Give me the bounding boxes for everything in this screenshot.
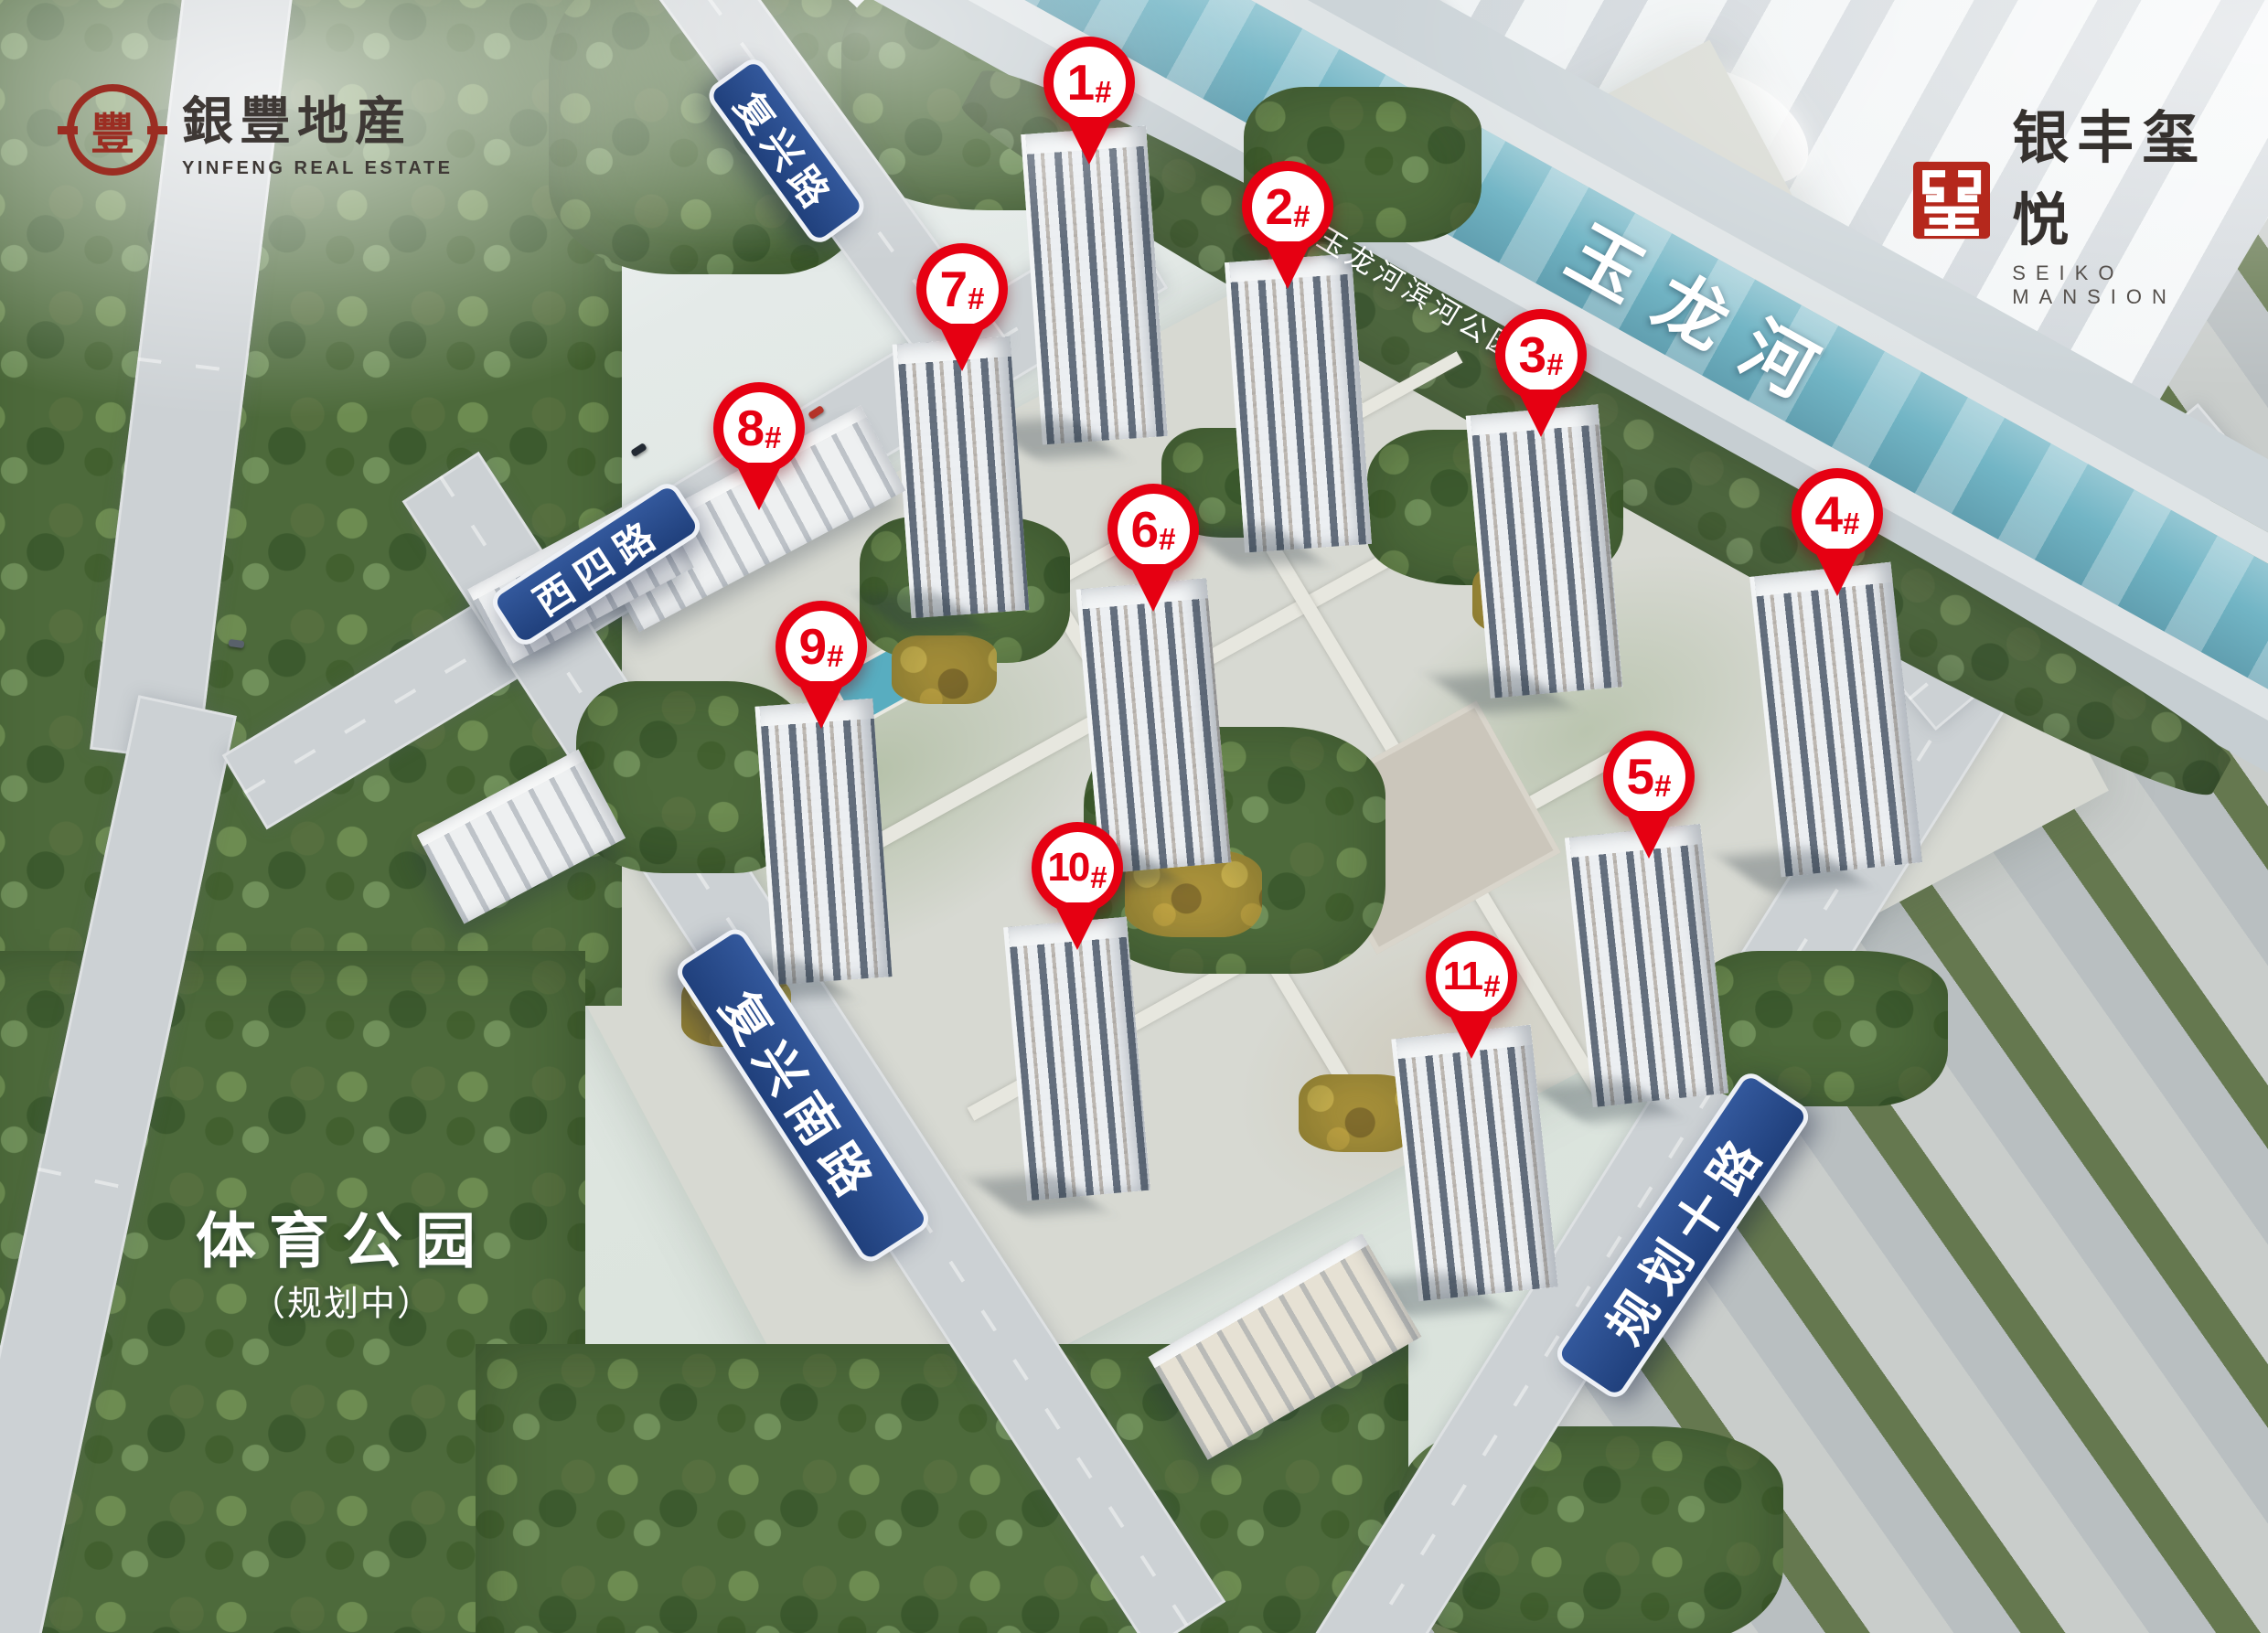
building-tower-1 [1021,126,1167,445]
pin-icon: 2# [1242,161,1333,252]
masterplan-aerial-rendering: 复兴路 西四路 复兴南路 规划十路 玉龙河 玉龙河滨河公园 体育公园 （规划中）… [0,0,2268,1633]
pin-tail [1054,902,1101,950]
autumn-trees [892,635,997,704]
yinfeng-seal-icon: 豐 [67,84,158,176]
pin-tail [797,681,845,729]
building-tower-11 [1391,1025,1557,1301]
building-tower-7 [893,336,1030,618]
building-marker-3: 3# [1495,309,1587,437]
building-marker-11: 11# [1426,931,1517,1059]
yinfeng-logo: 豐 銀豐地産 YINFENG REAL ESTATE [67,80,454,179]
building-marker-10: 10# [1032,822,1123,950]
yinfeng-logo-cn: 銀豐地産 [182,80,454,155]
pin-icon: 11# [1426,931,1517,1022]
building-tower-3 [1466,404,1622,698]
pin-tail [1129,564,1177,612]
building-tower-2 [1225,254,1372,553]
seal-glyph: 豐 [91,98,134,162]
pin-tail [1264,241,1311,289]
mansion-logo-cn: 银丰玺悦 [2012,91,2268,256]
pin-tail [1065,117,1113,165]
pin-tail [938,324,986,371]
pin-icon: 10# [1032,822,1123,913]
pin-tail [1813,549,1861,596]
mansion-logo-en: SEIKO MANSION [2012,261,2268,309]
pin-tail [735,463,783,510]
car [630,443,647,457]
pin-tail [1517,390,1565,437]
sports-park-sublabel: （规划中） [251,1275,433,1326]
building-tower-9 [755,699,893,985]
pin-icon: 5# [1603,731,1695,822]
pin-icon: 7# [916,243,1008,335]
pin-tail [1448,1011,1495,1059]
mansion-seal-icon [1913,156,1990,244]
pin-icon: 1# [1043,37,1135,128]
building-marker-6: 6# [1107,484,1199,612]
pin-tail [1625,811,1673,859]
building-tower-5 [1565,824,1728,1107]
pin-icon: 6# [1107,484,1199,575]
building-marker-9: 9# [776,601,867,729]
sports-park-label: 体育公园 [196,1192,488,1280]
building-marker-1: 1# [1043,37,1135,165]
building-marker-5: 5# [1603,731,1695,859]
building-marker-8: 8# [713,382,805,510]
pin-icon: 8# [713,382,805,474]
building-marker-7: 7# [916,243,1008,371]
compound-trees [1692,951,1948,1106]
yinfeng-logo-en: YINFENG REAL ESTATE [182,158,454,179]
building-marker-4: 4# [1792,468,1883,596]
building-tower-10 [1003,917,1150,1201]
pin-icon: 3# [1495,309,1587,400]
building-marker-2: 2# [1242,161,1333,289]
mansion-logo: 银丰玺悦 SEIKO MANSION [1913,91,2268,309]
pin-icon: 9# [776,601,867,692]
pin-icon: 4# [1792,468,1883,560]
